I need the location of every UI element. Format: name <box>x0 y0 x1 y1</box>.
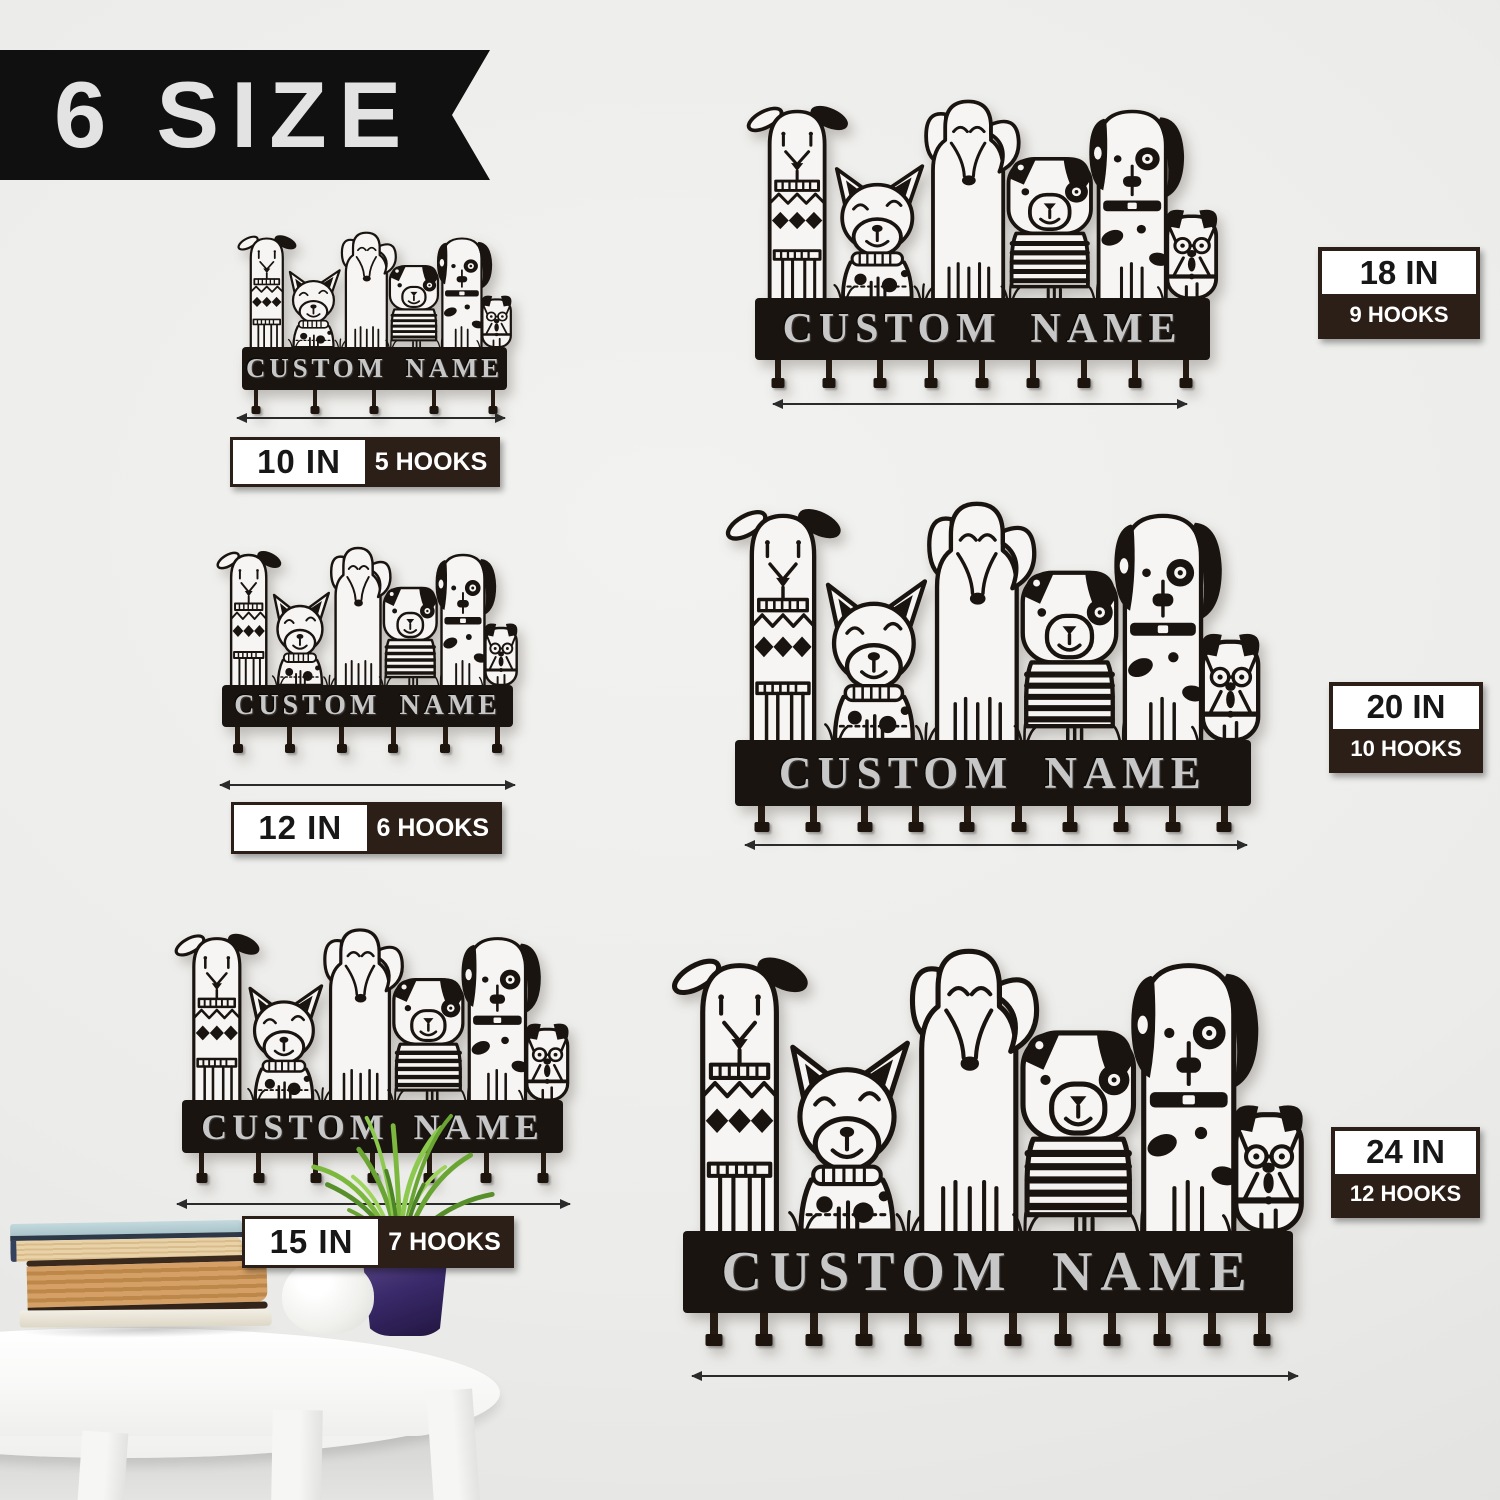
hook <box>1258 1313 1266 1346</box>
hook <box>443 727 448 753</box>
hook <box>339 727 344 753</box>
dogs-illustration <box>725 490 1262 740</box>
width-arrow <box>773 403 1187 405</box>
hook <box>313 390 317 414</box>
size-value: 20 IN <box>1333 686 1479 729</box>
size-value: 24 IN <box>1335 1131 1476 1174</box>
custom-name-text: CUSTOM NAME <box>722 1240 1255 1304</box>
hook <box>1208 1313 1216 1346</box>
dogs-illustration <box>216 540 519 685</box>
custom-name-plate: CUSTOM NAME <box>755 298 1210 360</box>
custom-name-text: CUSTOM NAME <box>234 690 500 722</box>
wall-background: 6 SIZE CUSTOM NAME CUSTOM NAME CUSTOM NA… <box>0 0 1500 1500</box>
hook <box>1059 1313 1067 1346</box>
table-leg <box>271 1410 323 1500</box>
hook <box>964 806 971 832</box>
side-table-apron <box>0 1386 466 1436</box>
size-label-20in: 20 IN 10 HOOKS <box>1329 682 1483 773</box>
hook <box>199 1153 204 1183</box>
hook-row <box>755 360 1210 388</box>
width-arrow <box>220 784 515 786</box>
hook <box>432 390 436 414</box>
hook <box>877 360 883 388</box>
dogs-illustration <box>174 920 570 1100</box>
hook <box>810 1313 818 1346</box>
hook <box>760 1313 768 1346</box>
hook <box>1030 360 1036 388</box>
custom-name-text: CUSTOM NAME <box>783 305 1183 353</box>
hook-row <box>683 1313 1293 1346</box>
width-arrow <box>692 1375 1298 1377</box>
hook-row <box>735 806 1251 832</box>
size-label-24in: 24 IN 12 HOOKS <box>1331 1127 1480 1218</box>
custom-name-text: CUSTOM NAME <box>246 353 503 384</box>
hook <box>1009 1313 1017 1346</box>
hook <box>1015 806 1022 832</box>
hooks-value: 6 HOOKS <box>367 805 500 851</box>
hook <box>541 1153 546 1183</box>
hook <box>495 727 500 753</box>
hook <box>1118 806 1125 832</box>
custom-name-plate: CUSTOM NAME <box>735 740 1251 806</box>
hook <box>826 360 832 388</box>
dogs-illustration <box>237 226 513 347</box>
hook <box>860 1313 868 1346</box>
custom-name-plate: CUSTOM NAME <box>222 685 513 727</box>
hook-row <box>242 390 507 414</box>
hooks-value: 5 HOOKS <box>365 440 497 484</box>
hook <box>1158 1313 1166 1346</box>
size-label-15in: 15 IN 7 HOOKS <box>242 1216 514 1268</box>
book-middle <box>26 1254 267 1314</box>
hook <box>810 806 817 832</box>
hook <box>775 360 781 388</box>
size-banner-label: 6 SIZE <box>0 68 413 162</box>
hooks-value: 7 HOOKS <box>378 1219 511 1265</box>
hook <box>909 1313 917 1346</box>
hook <box>979 360 985 388</box>
hook-row <box>222 727 513 753</box>
custom-name-text: CUSTOM NAME <box>779 747 1207 799</box>
book-bottom <box>20 1309 272 1328</box>
hooks-value: 10 HOOKS <box>1333 729 1479 769</box>
book-pages <box>27 1260 268 1307</box>
hooks-value: 12 HOOKS <box>1335 1174 1476 1214</box>
size-value: 12 IN <box>234 805 367 851</box>
hook <box>1067 806 1074 832</box>
width-arrow <box>745 844 1247 846</box>
size-value: 10 IN <box>233 440 365 484</box>
hook <box>758 806 765 832</box>
hook <box>391 727 396 753</box>
hook <box>235 727 240 753</box>
hook <box>959 1313 967 1346</box>
hook <box>1169 806 1176 832</box>
hook <box>861 806 868 832</box>
hook <box>287 727 292 753</box>
hook <box>1221 806 1228 832</box>
table-leg <box>78 1430 129 1500</box>
hook <box>912 806 919 832</box>
custom-name-plate: CUSTOM NAME <box>683 1231 1293 1313</box>
size-label-10in: 10 IN 5 HOOKS <box>230 437 500 487</box>
hook <box>1183 360 1189 388</box>
size-label-18in: 18 IN 9 HOOKS <box>1318 247 1480 339</box>
size-value: 15 IN <box>245 1219 378 1265</box>
hook <box>1132 360 1138 388</box>
white-vase <box>282 1258 374 1334</box>
hook <box>256 1153 261 1183</box>
hook <box>372 390 376 414</box>
custom-name-plate: CUSTOM NAME <box>242 347 507 390</box>
hook <box>1081 360 1087 388</box>
size-value: 18 IN <box>1322 251 1476 294</box>
hook <box>491 390 495 414</box>
hook <box>710 1313 718 1346</box>
hook <box>928 360 934 388</box>
hooks-value: 9 HOOKS <box>1322 294 1476 335</box>
dogs-illustration <box>746 90 1219 298</box>
width-arrow <box>237 417 505 419</box>
hook <box>1108 1313 1116 1346</box>
table-leg <box>426 1389 480 1500</box>
dogs-illustration <box>671 935 1305 1231</box>
hook <box>254 390 258 414</box>
size-label-12in: 12 IN 6 HOOKS <box>231 802 502 854</box>
size-banner-flag: 6 SIZE <box>0 50 490 180</box>
